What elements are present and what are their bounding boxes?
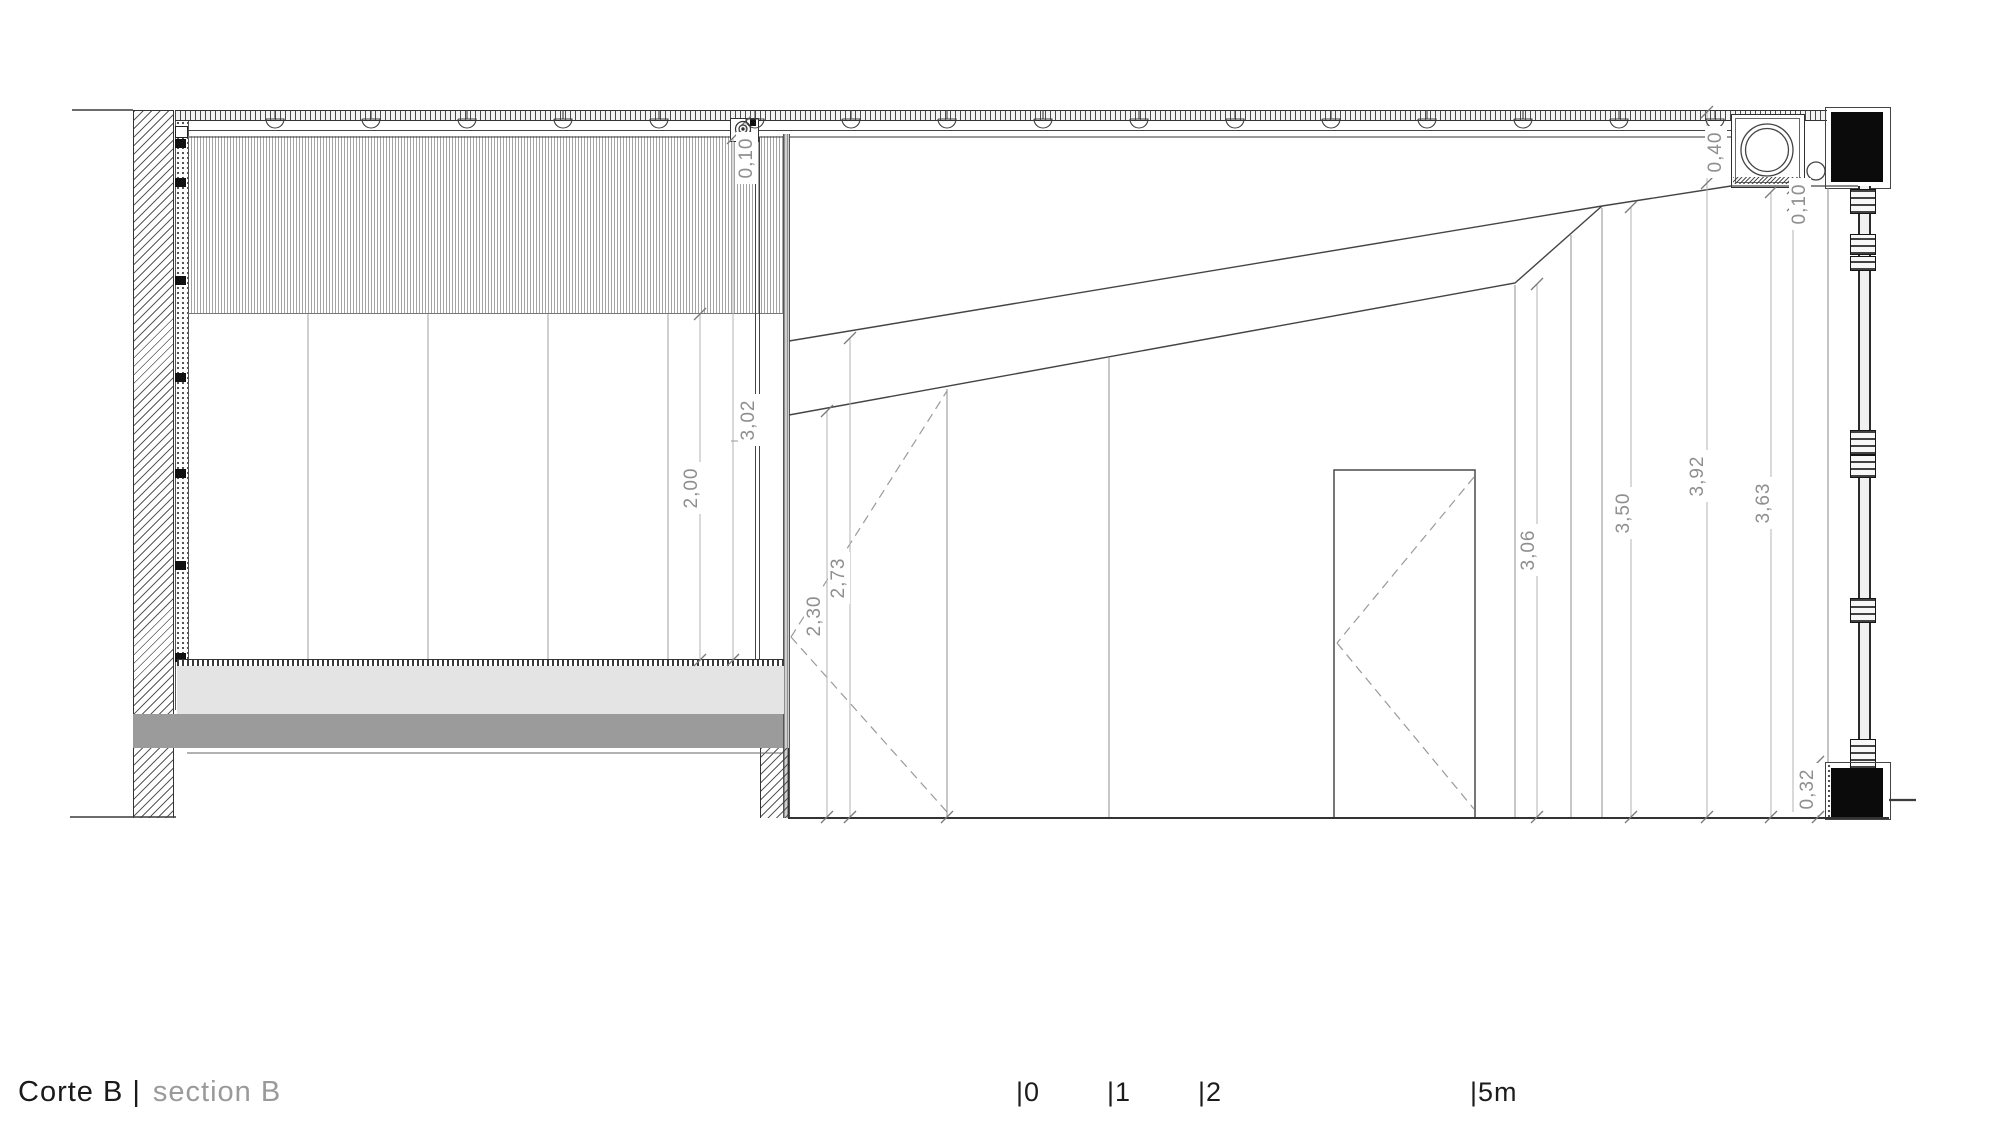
door-opening (1334, 470, 1475, 817)
dimension-label-3-06: 3,06 (1518, 524, 1540, 576)
roof-slope-lower (789, 206, 1602, 415)
dimension-label-3-50: 3,50 (1613, 487, 1635, 539)
dimension-label-3-92: 3,92 (1687, 450, 1709, 502)
dimension-ticks (694, 106, 1824, 823)
roof-slope-upper (789, 186, 1731, 341)
scale-bar-tick-1: |1 (1107, 1077, 1131, 1108)
dimension-label-3-02: 3,02 (738, 394, 760, 446)
duct-circle-icon (1741, 124, 1793, 176)
drawing-title-primary: Corte B | (18, 1076, 141, 1108)
scale-bar-tick-0: |0 (1016, 1077, 1040, 1108)
drawing-linework (0, 0, 2000, 1130)
dimension-label-roof-left: 0,10 (736, 132, 758, 184)
dimension-label-2-73: 2,73 (828, 552, 850, 604)
ceiling-hanger-icons (266, 110, 1724, 128)
dimension-label-2-00: 2,00 (681, 462, 703, 514)
dimension-label-0-32: 0,32 (1797, 763, 1819, 815)
scale-bar-tick-5m: |5m (1470, 1077, 1518, 1108)
panel-joints-right-room (947, 208, 1602, 817)
dimension-lines (700, 112, 1818, 817)
dimension-label-roof-right: 0,10 (1789, 178, 1811, 230)
dimension-label-3-63: 3,63 (1753, 477, 1775, 529)
dimension-label-0-40: 0,40 (1705, 126, 1727, 178)
drawing-title: Corte B |section B (18, 1076, 281, 1109)
drawing-title-secondary: section B (153, 1076, 281, 1108)
panel-joints-left-room (308, 314, 668, 659)
architectural-section-sheet: 0,10 3,02 2,00 2,30 2,73 3,06 3,50 3,92 … (0, 0, 2000, 1130)
scale-bar-tick-2: |2 (1198, 1077, 1222, 1108)
dimension-label-2-30: 2,30 (804, 590, 826, 642)
door-swing-dashes (791, 391, 1474, 812)
